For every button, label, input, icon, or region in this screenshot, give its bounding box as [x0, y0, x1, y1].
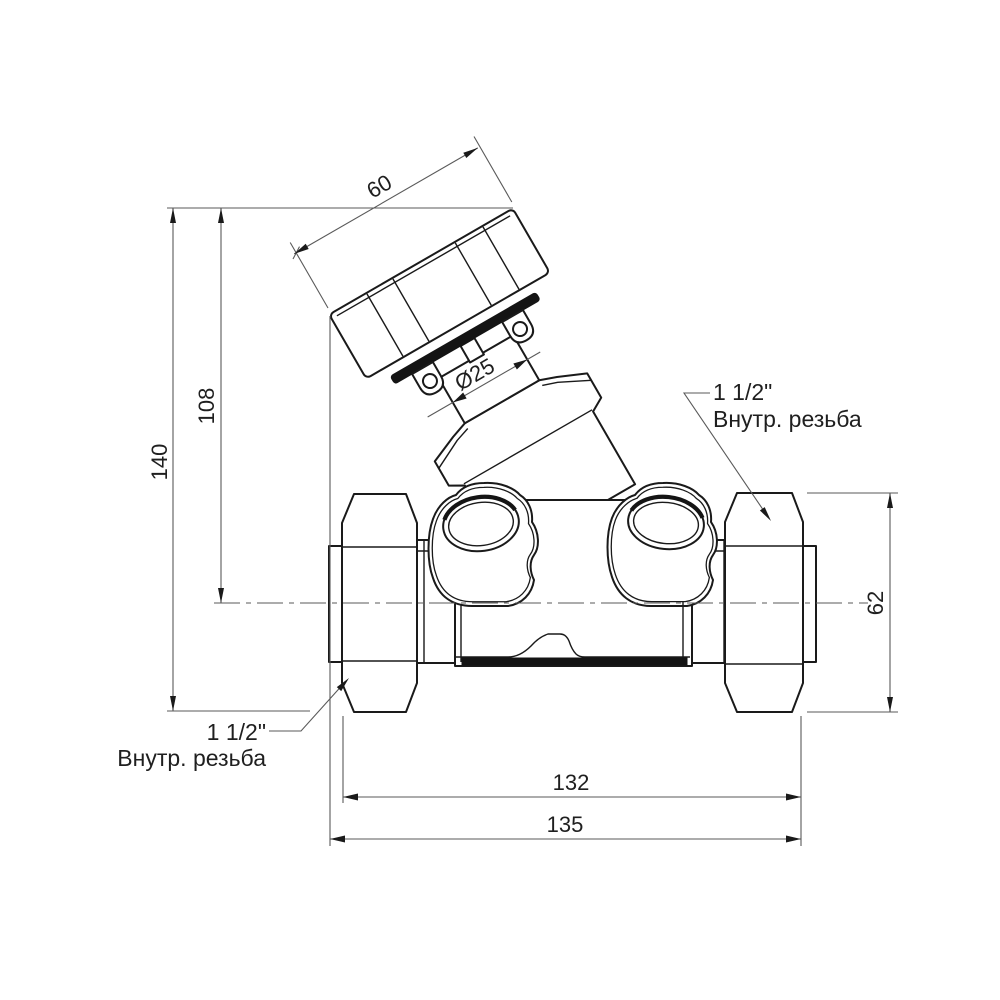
ext-line-60-right	[474, 137, 512, 203]
left-thread-size: 1 1/2"	[207, 719, 266, 745]
right-thread-size: 1 1/2"	[713, 379, 772, 405]
dim-132-label: 132	[553, 770, 590, 795]
left-leader-line	[269, 682, 346, 732]
body-bottom-band	[462, 658, 687, 665]
dim-line-60	[294, 148, 478, 254]
technical-drawing-page: 140 108 60 Ø25 62	[0, 0, 1000, 1000]
left-thread-callout: 1 1/2" Внутр. резьба	[117, 678, 349, 771]
dim-135-label: 135	[547, 812, 584, 837]
right-tail-stub	[803, 546, 816, 662]
dim-108-label: 108	[194, 388, 219, 425]
dim-140-label: 140	[147, 444, 172, 481]
left-thread-text: Внутр. резьба	[117, 745, 266, 771]
right-port-boss	[608, 483, 717, 606]
left-tail-stub	[329, 546, 342, 662]
left-port-boss	[429, 483, 538, 606]
valve-drawing: 140 108 60 Ø25 62	[0, 0, 1000, 1000]
right-thread-text: Внутр. резьба	[713, 406, 862, 432]
dim-62-label: 62	[863, 591, 888, 615]
